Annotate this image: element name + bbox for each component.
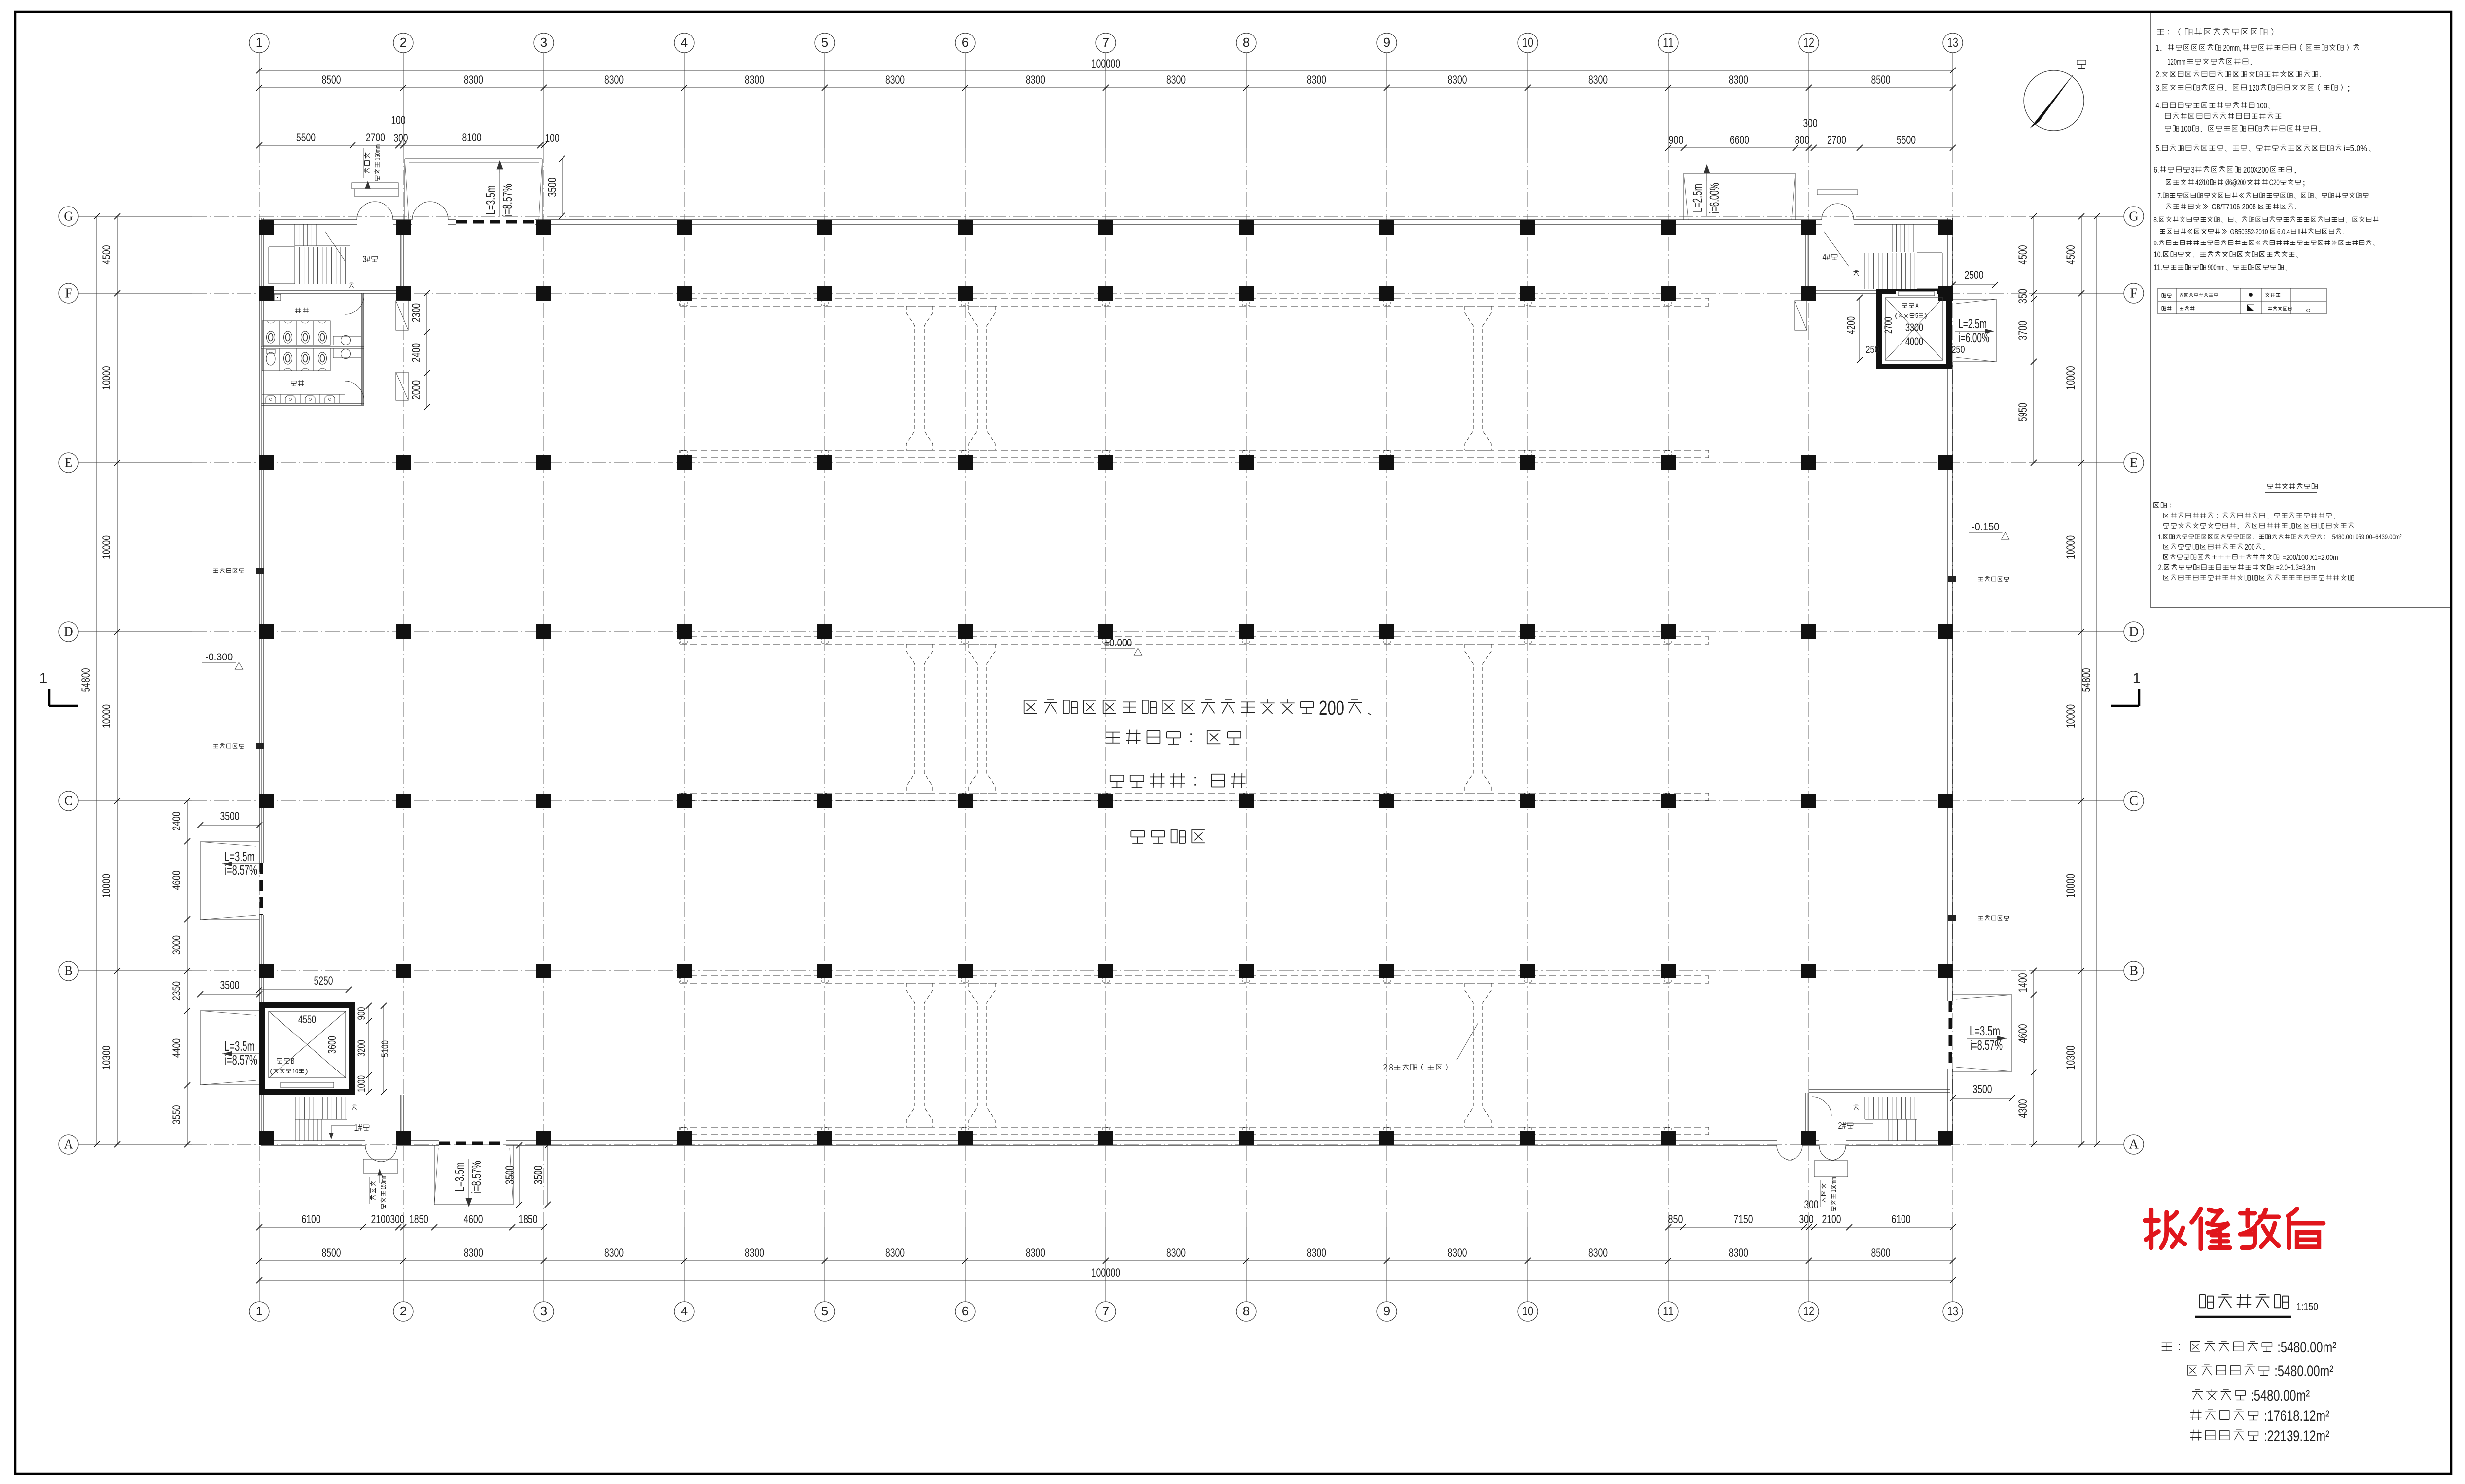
svg-text:4#: 4# [1823,252,1831,262]
svg-text:3600: 3600 [326,1036,338,1054]
svg-text:900: 900 [1669,134,1684,147]
svg-text:2100: 2100 [1822,1213,1841,1226]
svg-text:5480.00+959.00=6439.00m²: 5480.00+959.00=6439.00m² [2332,533,2402,541]
svg-text:1#: 1# [354,1122,363,1133]
svg-text:100000: 100000 [1092,1266,1120,1279]
svg-text:120mm: 120mm [2168,57,2186,67]
svg-text:8: 8 [1243,35,1250,50]
svg-text:8: 8 [1243,1304,1250,1318]
svg-text:8300: 8300 [885,73,905,87]
svg-text:2.: 2. [2156,69,2161,79]
svg-text:150mm: 150mm [379,1175,387,1190]
svg-text::22139.12m²: :22139.12m² [2264,1427,2329,1445]
svg-text:3700: 3700 [2016,321,2030,340]
svg-text:10: 10 [1522,35,1533,50]
svg-text:3: 3 [2191,165,2195,174]
svg-text:8500: 8500 [322,73,341,87]
svg-text:): ) [305,1067,308,1075]
svg-text:7150: 7150 [1734,1213,1753,1226]
svg-text:E: E [2130,455,2138,470]
svg-text:4200: 4200 [1845,316,1857,334]
svg-text:10: 10 [1522,1304,1533,1318]
svg-text:300: 300 [1803,117,1818,130]
svg-text:8100: 8100 [462,131,482,144]
svg-text:1:150: 1:150 [2296,1301,2318,1312]
svg-text:i=8.57%: i=8.57% [225,1052,257,1068]
svg-text:2300: 2300 [410,303,423,322]
svg-text:300: 300 [394,132,408,145]
svg-text:7: 7 [1102,1304,1109,1318]
svg-text:8300: 8300 [1026,73,1045,87]
svg-text:2000: 2000 [410,380,423,400]
svg-text:120: 120 [2249,83,2259,93]
svg-text:10: 10 [292,1067,298,1075]
svg-text:i=8.57%: i=8.57% [500,184,515,216]
svg-text:8300: 8300 [604,73,624,87]
svg-text:;: ; [2302,178,2306,187]
svg-text:i=6.00%: i=6.00% [1959,330,1989,345]
svg-text:2: 2 [400,1304,407,1318]
svg-text:A: A [64,1137,73,1152]
svg-text:i=8.57%: i=8.57% [1970,1037,2003,1053]
svg-text:i=6.00%: i=6.00% [1707,183,1722,213]
svg-text:5: 5 [1915,312,1918,319]
svg-text:3300: 3300 [1905,321,1923,334]
svg-text:10000: 10000 [100,366,113,390]
svg-text:i=5.0%: i=5.0% [2344,143,2367,153]
svg-text:8300: 8300 [1729,73,1748,87]
svg-text::5480.00m²: :5480.00m² [2251,1387,2310,1404]
svg-text:7.: 7. [2157,192,2162,200]
svg-text:10000: 10000 [2064,704,2078,728]
svg-text:(: ( [270,1067,273,1075]
svg-text:250: 250 [1952,345,1965,355]
svg-text:10000: 10000 [100,874,113,898]
svg-text:4500: 4500 [100,245,113,265]
svg-text:i=8.57%: i=8.57% [225,863,257,878]
svg-text:.: . [2295,203,2296,211]
svg-text:10000: 10000 [100,704,113,728]
svg-text:4: 4 [681,35,688,50]
svg-text:3200: 3200 [356,1040,367,1057]
svg-text:6.: 6. [2154,165,2159,174]
svg-text:2100: 2100 [371,1213,390,1226]
svg-text:C: C [64,794,73,808]
svg-text:1400: 1400 [2016,973,2030,993]
svg-text:54800: 54800 [2080,668,2093,692]
svg-text:C20: C20 [2269,178,2280,187]
svg-text:8300: 8300 [1588,1246,1608,1260]
svg-text:D: D [64,624,73,639]
svg-text:1000: 1000 [356,1075,367,1092]
svg-text:3550: 3550 [170,1105,183,1125]
svg-text:=2.0+1.3=3.3m: =2.0+1.3=3.3m [2276,563,2315,572]
svg-text:2500: 2500 [1965,269,1984,282]
svg-text:A: A [1916,302,1919,310]
svg-text:5: 5 [821,1304,828,1318]
svg-text:(: ( [1895,312,1898,319]
svg-text:5100: 5100 [380,1040,391,1057]
svg-text:L=3.5m: L=3.5m [452,1162,467,1192]
svg-text:8300: 8300 [1166,1246,1186,1260]
svg-text:200X200: 200X200 [2243,165,2269,174]
svg-text:200: 200 [2245,543,2255,552]
svg-text:B: B [2129,964,2138,978]
svg-text:8300: 8300 [464,73,483,87]
svg-text:2.8: 2.8 [1383,1062,1393,1072]
svg-text:1: 1 [2133,670,2141,687]
svg-text:9: 9 [1383,35,1390,50]
svg-text:9.: 9. [2153,239,2158,247]
svg-text:5500: 5500 [1897,134,1916,147]
svg-text:;: ; [2347,83,2351,93]
svg-text:2700: 2700 [1883,317,1894,334]
svg-text:8300: 8300 [1588,73,1608,87]
svg-text:8300: 8300 [885,1246,905,1260]
svg-text:2700: 2700 [366,131,385,144]
svg-text:100: 100 [2181,124,2191,134]
svg-text:L=3.5m: L=3.5m [224,849,255,864]
svg-text:=200/100 X1=2.00m: =200/100 X1=2.00m [2283,553,2338,562]
svg-text:4550: 4550 [298,1013,316,1026]
svg-text:3#: 3# [363,254,371,264]
svg-text:): ) [1924,312,1927,319]
svg-text::5480.00m²: :5480.00m² [2277,1339,2336,1356]
svg-text:8300: 8300 [1448,1246,1467,1260]
svg-text:8300: 8300 [1448,73,1467,87]
svg-text:900: 900 [356,1007,367,1020]
svg-text:6: 6 [962,35,969,50]
svg-text:.: . [2319,69,2321,79]
svg-text:2: 2 [400,35,407,50]
svg-text:3000: 3000 [170,935,183,955]
svg-text:100: 100 [391,114,406,127]
svg-text:54800: 54800 [79,668,93,692]
svg-text:2700: 2700 [1827,134,1846,147]
svg-text:6100: 6100 [1892,1213,1911,1226]
svg-text:5250: 5250 [314,974,333,988]
svg-text:20mm,: 20mm, [2223,43,2242,53]
svg-text:9: 9 [1383,1304,1390,1318]
svg-text:5: 5 [821,35,828,50]
svg-text:-0.150: -0.150 [1972,520,1999,533]
svg-text:900mm: 900mm [2208,263,2225,272]
svg-text:4600: 4600 [464,1213,483,1226]
svg-text:3500: 3500 [546,178,559,197]
svg-text:4300: 4300 [2016,1099,2030,1118]
svg-text:F: F [65,286,72,301]
svg-text:C: C [2129,794,2138,808]
svg-text:1: 1 [39,670,48,687]
svg-text:B: B [291,1057,294,1066]
svg-text:8500: 8500 [1871,1246,1891,1260]
svg-text:F: F [2130,286,2137,301]
svg-text:11.: 11. [2154,263,2162,272]
svg-text:13: 13 [1947,35,1958,50]
svg-text:Ø6@200: Ø6@200 [2225,178,2246,187]
svg-text:350: 350 [2016,289,2030,304]
svg-text:11: 11 [1663,1304,1674,1318]
svg-text:±0.000: ±0.000 [1104,636,1132,649]
svg-text:1: 1 [256,1304,263,1318]
svg-text::17618.12m²: :17618.12m² [2264,1407,2329,1424]
svg-text:6: 6 [962,1304,969,1318]
svg-text:8300: 8300 [604,1246,624,1260]
svg-text:I: I [2298,228,2301,236]
svg-text:5950: 5950 [2016,403,2030,422]
svg-text:10300: 10300 [2064,1046,2078,1070]
svg-text:8300: 8300 [1729,1246,1748,1260]
svg-text:850: 850 [1668,1213,1683,1226]
svg-text:12: 12 [1803,1304,1814,1318]
svg-text:4500: 4500 [2064,245,2078,265]
svg-text:5.: 5. [2156,143,2161,153]
svg-text:3: 3 [540,35,547,50]
svg-text:150mm: 150mm [374,144,382,160]
svg-text:300: 300 [1804,1198,1819,1211]
svg-text:10000: 10000 [100,535,113,559]
svg-text:4600: 4600 [170,871,183,890]
svg-text::5480.00m²: :5480.00m² [2274,1362,2333,1380]
svg-text:4600: 4600 [2016,1024,2030,1043]
svg-text:-0.300: -0.300 [205,651,233,663]
svg-text:8.: 8. [2153,216,2158,224]
svg-text:4: 4 [681,1304,688,1318]
svg-text:200: 200 [1319,696,1344,719]
svg-text:800: 800 [1795,134,1810,147]
svg-text:GB50352-2010: GB50352-2010 [2230,228,2268,236]
svg-text:300: 300 [390,1213,405,1226]
svg-text:3500: 3500 [1973,1083,1992,1096]
svg-text:L=3.5m: L=3.5m [1970,1023,2000,1038]
svg-text:D: D [2129,624,2139,639]
svg-text:10000: 10000 [2064,874,2078,898]
svg-text:8300: 8300 [745,1246,764,1260]
svg-text:B: B [64,964,73,978]
svg-text:250: 250 [1866,345,1879,355]
svg-text:A: A [2129,1137,2139,1152]
svg-text:GB/T7106-2008: GB/T7106-2008 [2212,203,2256,211]
svg-text:6100: 6100 [302,1213,321,1226]
svg-text:L=3.5m: L=3.5m [224,1038,255,1054]
svg-text:3500: 3500 [503,1166,517,1185]
svg-text:4.: 4. [2156,101,2161,110]
svg-text:3.: 3. [2156,83,2161,93]
svg-text:2400: 2400 [170,812,183,831]
svg-text:100: 100 [2256,101,2267,110]
svg-text:8500: 8500 [322,1246,341,1260]
svg-text:300: 300 [1799,1213,1814,1226]
svg-text:1850: 1850 [519,1213,538,1226]
svg-text:8300: 8300 [464,1246,483,1260]
svg-text:10300: 10300 [100,1046,113,1070]
svg-text:3500: 3500 [532,1166,545,1185]
svg-text:10000: 10000 [2064,366,2078,390]
svg-text:1: 1 [2156,43,2159,53]
svg-text:6.0.4: 6.0.4 [2277,228,2290,236]
svg-text:11: 11 [1663,35,1674,50]
svg-text:4Ø10: 4Ø10 [2195,178,2209,187]
svg-text:L=3.5m: L=3.5m [483,185,498,215]
svg-text:L=2.5m: L=2.5m [1690,184,1705,212]
svg-text:G: G [64,209,73,224]
svg-text:1850: 1850 [409,1213,428,1226]
svg-text:8300: 8300 [1166,73,1186,87]
svg-text:8500: 8500 [1871,73,1891,87]
svg-text:10000: 10000 [2064,535,2078,559]
svg-text:150mm: 150mm [1830,1177,1837,1192]
svg-text:4000: 4000 [1905,335,1923,347]
svg-text:E: E [65,455,73,470]
svg-text:2350: 2350 [170,981,183,1001]
svg-text:2400: 2400 [410,343,423,362]
svg-text:3500: 3500 [220,979,240,992]
svg-text:3500: 3500 [220,810,240,823]
svg-text:G: G [2129,209,2139,224]
svg-text:6600: 6600 [1730,134,1749,147]
svg-text:L=2.5m: L=2.5m [1958,316,1987,331]
svg-text:4500: 4500 [2016,245,2030,265]
svg-text:10.: 10. [2154,250,2162,259]
svg-text:3: 3 [540,1304,547,1318]
svg-text:12: 12 [1803,35,1814,50]
svg-text:8300: 8300 [745,73,764,87]
svg-text:4400: 4400 [170,1038,183,1058]
svg-text:2#: 2# [1838,1120,1847,1131]
svg-text:1: 1 [256,35,263,50]
svg-text:13: 13 [1947,1304,1958,1318]
svg-text:5500: 5500 [296,131,316,144]
svg-text:1.: 1. [2158,533,2162,541]
svg-text:100: 100 [545,132,560,145]
svg-text:.: . [2342,228,2344,236]
svg-text:8300: 8300 [1307,73,1326,87]
svg-text:100000: 100000 [1092,57,1120,70]
svg-text:8300: 8300 [1307,1246,1326,1260]
svg-text:2.: 2. [2158,563,2163,572]
svg-text:,: , [2294,165,2297,174]
svg-text:7: 7 [1102,35,1109,50]
svg-text:i=8.57%: i=8.57% [469,1161,484,1193]
svg-text:8300: 8300 [1026,1246,1045,1260]
